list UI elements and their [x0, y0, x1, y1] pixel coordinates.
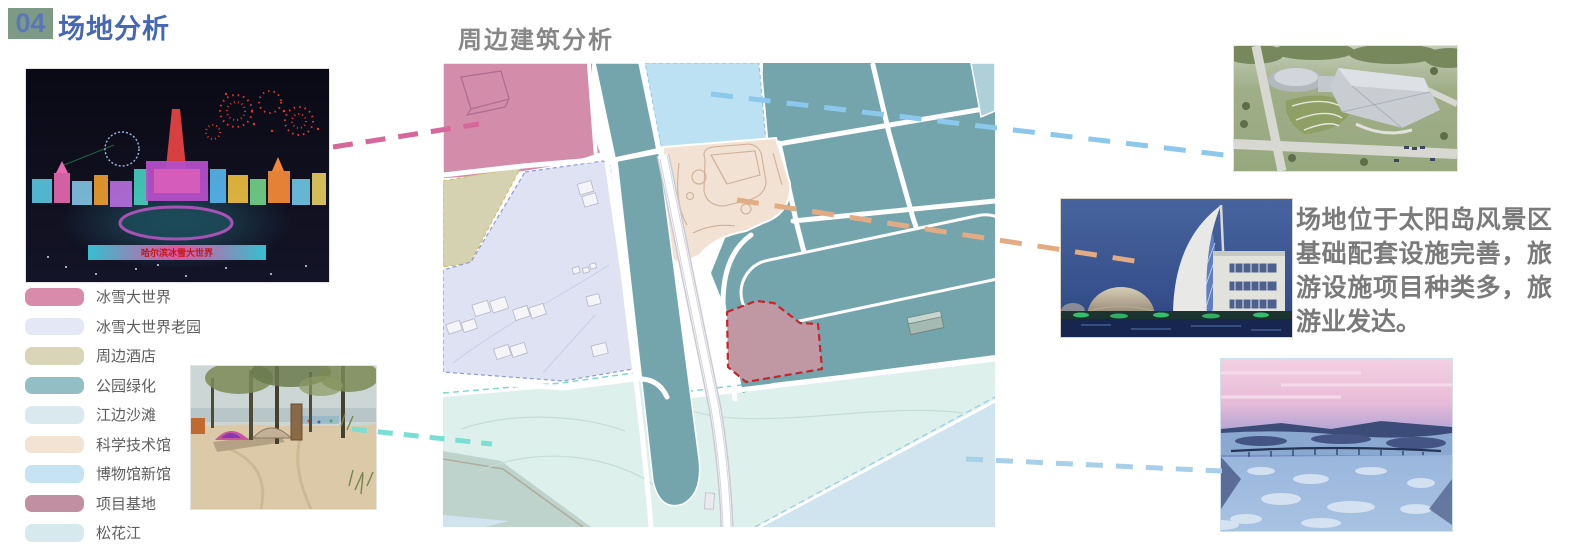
legend-item: 周边酒店: [25, 347, 201, 365]
legend-swatch: [25, 436, 84, 454]
plaza-ring: [120, 207, 232, 239]
legend-label: 江边沙滩: [96, 404, 156, 425]
legend-label: 冰雪大世界: [96, 286, 171, 307]
legend-item: 冰雪大世界: [25, 288, 201, 306]
photo-ice-world: 哈尔滨冰雪大世界: [25, 68, 330, 283]
legend-swatch: [25, 524, 84, 542]
legend-label: 项目基地: [96, 493, 156, 514]
arena-illustration: [1234, 46, 1457, 171]
photo-science-museum: [1060, 198, 1293, 338]
photo-songhua-river: [1220, 358, 1453, 532]
legend-item: 松花江: [25, 524, 201, 542]
page-title: 场地分析: [58, 7, 170, 46]
legend-item: 冰雪大世界老园: [25, 318, 201, 336]
zone-museum-new: [645, 63, 766, 151]
window-grid: [1229, 263, 1277, 309]
legend-item: 项目基地: [25, 495, 201, 513]
legend-swatch: [25, 406, 84, 424]
legend-swatch: [25, 377, 84, 395]
beach-illustration: [191, 366, 376, 509]
legend-label: 公园绿化: [96, 375, 156, 396]
legend-item: 博物馆新馆: [25, 465, 201, 483]
legend-item: 江边沙滩: [25, 406, 201, 424]
legend-swatch: [25, 495, 84, 513]
science-museum-illustration: [1061, 199, 1292, 337]
site-map: [443, 63, 995, 527]
site-description: 场地位于太阳岛风景区基础配套设施完善，旅游设施项目种类多，旅游业发达。: [1296, 203, 1552, 339]
slide-canvas: 04 场地分析 周边建筑分析: [0, 0, 1575, 553]
lawn-lights: [1061, 311, 1292, 319]
legend-label: 博物馆新馆: [96, 463, 171, 484]
legend-label: 科学技术馆: [96, 434, 171, 455]
ice-world-illustration: 哈尔滨冰雪大世界: [26, 69, 330, 283]
legend-swatch: [25, 347, 84, 365]
map-section-title: 周边建筑分析: [458, 20, 614, 55]
legend-swatch: [25, 465, 84, 483]
section-number-badge: 04: [8, 8, 53, 39]
map-legend: 冰雪大世界 冰雪大世界老园 周边酒店 公园绿化 江边沙滩 科学技术馆 博物馆新馆…: [25, 288, 201, 553]
distant-people: [299, 416, 339, 424]
wooden-sign: [291, 404, 302, 440]
legend-swatch: [25, 288, 84, 306]
water: [1061, 317, 1292, 337]
legend-label: 松花江: [96, 522, 141, 543]
connector-river: [966, 459, 1222, 471]
photo-museum-new-aerial: [1233, 45, 1458, 172]
photo-riverside-beach: [190, 365, 377, 510]
river-illustration: [1221, 359, 1452, 531]
legend-item: 公园绿化: [25, 377, 201, 395]
legend-swatch: [25, 318, 84, 336]
legend-item: 科学技术馆: [25, 436, 201, 454]
legend-label: 周边酒店: [96, 345, 156, 366]
legend-label: 冰雪大世界老园: [96, 316, 201, 337]
ice-banner-text: 哈尔滨冰雪大世界: [141, 247, 213, 258]
